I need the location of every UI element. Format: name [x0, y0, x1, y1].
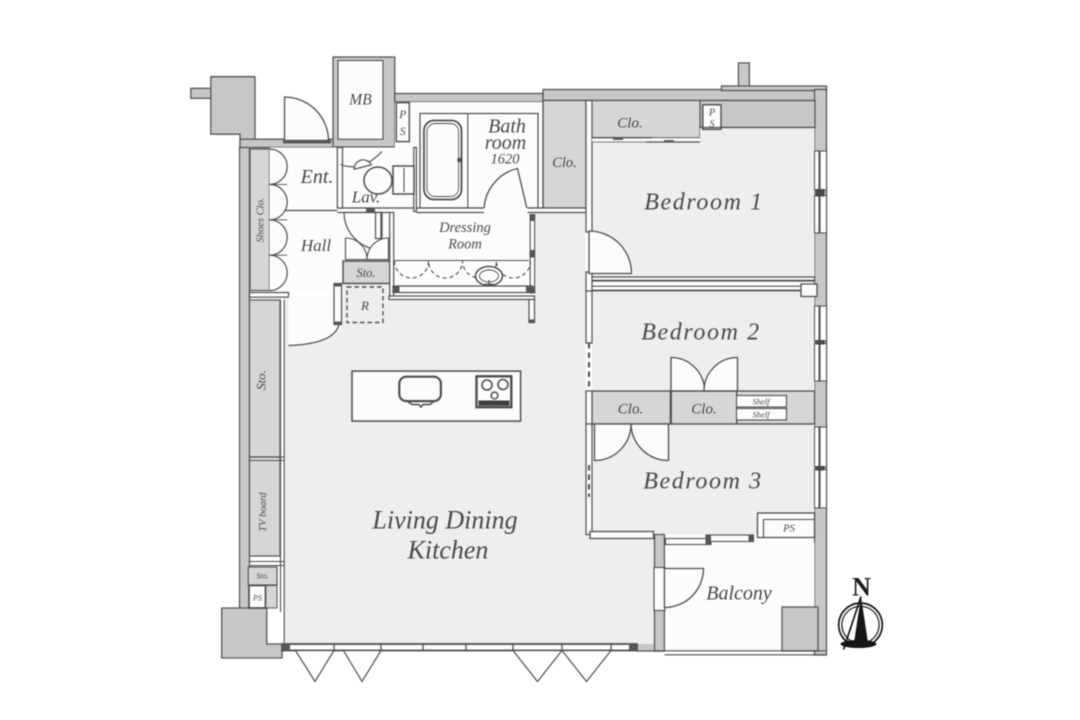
- svg-text:PS: PS: [782, 524, 795, 535]
- svg-text:Bedroom 2: Bedroom 2: [641, 320, 761, 346]
- svg-text:Bedroom 1: Bedroom 1: [644, 190, 764, 216]
- svg-text:Kitchen: Kitchen: [407, 536, 489, 565]
- svg-text:Sto.: Sto.: [256, 572, 268, 581]
- svg-text:Balcony: Balcony: [706, 583, 772, 605]
- svg-text:Clo.: Clo.: [618, 402, 643, 418]
- svg-text:PS: PS: [252, 594, 262, 603]
- svg-text:Shelf: Shelf: [753, 397, 772, 407]
- svg-text:Sto.: Sto.: [356, 266, 375, 280]
- svg-text:N: N: [852, 573, 871, 602]
- svg-text:Clo.: Clo.: [552, 155, 577, 171]
- svg-text:Hall: Hall: [300, 236, 332, 255]
- svg-text:Clo.: Clo.: [617, 116, 642, 132]
- svg-text:Shoes Clo.: Shoes Clo.: [256, 198, 267, 243]
- svg-text:Lav.: Lav.: [351, 188, 381, 207]
- svg-text:TV board: TV board: [258, 492, 269, 532]
- svg-text:Shelf: Shelf: [753, 410, 772, 420]
- svg-text:P: P: [398, 109, 406, 121]
- svg-text:S: S: [710, 119, 715, 130]
- svg-text:P: P: [708, 108, 715, 119]
- svg-text:Sto.: Sto.: [254, 370, 269, 390]
- svg-text:Clo.: Clo.: [691, 402, 716, 418]
- svg-text:Living Dining: Living Dining: [371, 506, 517, 535]
- svg-text:S: S: [400, 126, 406, 138]
- svg-text:Bedroom 3: Bedroom 3: [643, 469, 763, 495]
- svg-text:1620: 1620: [491, 152, 521, 168]
- svg-text:Ent.: Ent.: [300, 166, 334, 188]
- svg-text:Room: Room: [447, 237, 482, 253]
- svg-text:MB: MB: [348, 92, 372, 109]
- svg-text:R: R: [360, 298, 369, 313]
- svg-text:Dressing: Dressing: [438, 220, 491, 236]
